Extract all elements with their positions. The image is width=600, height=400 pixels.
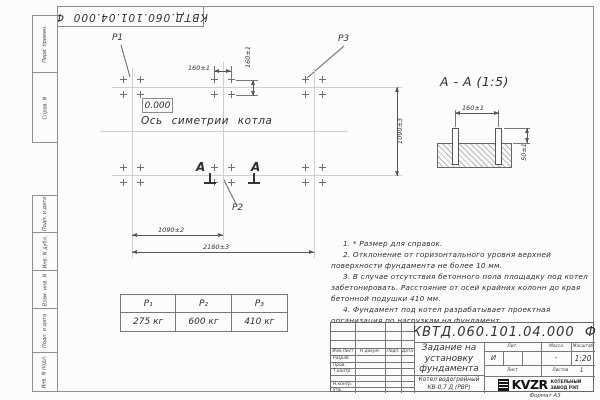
brand-subtext: КОТЕЛЬНЫЙ ЗАВОД РЭП: [551, 379, 582, 390]
dimension-text-bolt-height: 50±1: [511, 147, 537, 157]
scale-value: 1:20: [571, 351, 595, 365]
dimension-line: [132, 252, 314, 253]
margin-label: Инв. N дубл.: [42, 235, 48, 268]
bolt-mark: [302, 91, 309, 98]
scale-label: Масштаб: [571, 342, 595, 351]
drawing-sheet: КВТД.060.101.04.000 Ф Перв. примен. Спра…: [0, 0, 600, 400]
bolt-mark: [302, 76, 309, 83]
bolt-cluster: [211, 76, 235, 98]
axis-line: [112, 87, 402, 88]
lit-label: Лит.: [484, 342, 541, 351]
title-block-grid-line: [401, 323, 402, 393]
margin-cell-inv-dubl: Инв. N дубл.: [32, 232, 58, 271]
note-3: 3. В случае отсутствия бетонного пола пл…: [331, 272, 591, 305]
title-block-row-razrab: Разраб.: [331, 355, 355, 362]
bolt-mark: [228, 164, 235, 171]
note-2: 2. Отклонение от горизонтального уровня …: [331, 250, 591, 272]
mass-value: -: [541, 351, 571, 365]
load-table: P₁ P₂ P₃ 275 кг 600 кг 410 кг: [120, 294, 288, 332]
section-cut-mark: [209, 173, 211, 184]
load-table-value: 600 кг: [176, 313, 231, 331]
margin-label: Инв. N подл.: [42, 355, 48, 388]
dimension-text: 1090±3: [396, 118, 404, 144]
bolt-cluster: [120, 164, 144, 186]
dimension-text-section-spacing: 160±1: [462, 104, 484, 112]
title-block-row-utv: Утв.: [331, 387, 355, 393]
load-table-header: P₁: [121, 295, 176, 313]
dimension-line: [455, 113, 499, 114]
section-letter: А: [251, 160, 260, 174]
margin-label: Подп. и дата: [42, 313, 48, 347]
lit-value: И: [484, 351, 503, 365]
dimension-text-bolt-spacing-h: 160±1: [188, 64, 210, 72]
bolt-mark: [137, 164, 144, 171]
format-note: Формат А3: [505, 393, 585, 399]
load-table-header: P₂: [176, 295, 231, 313]
dimension-text: 160±1: [244, 46, 252, 68]
sheets-value: 1: [580, 367, 584, 374]
title-block-grid-line: [503, 351, 504, 365]
title-block-col-izm-list: Изм.Лист: [331, 348, 355, 355]
title-block-grid-line: [522, 351, 523, 365]
bolt-mark: [137, 76, 144, 83]
title-block-col-n-dokum: Н докум.: [355, 348, 385, 355]
section-letter: А: [196, 160, 205, 174]
anchor-bolt: [452, 128, 459, 165]
anchor-bolt: [495, 128, 502, 165]
load-table-value: 275 кг: [121, 313, 176, 331]
bolt-mark: [302, 179, 309, 186]
axis-line: [112, 175, 402, 176]
bolt-mark: [211, 91, 218, 98]
company-logo: KVZR КОТЕЛЬНЫЙ ЗАВОД РЭП: [484, 376, 595, 393]
load-point-label-p3: P3: [338, 34, 349, 44]
margin-label: Перв. примен.: [42, 25, 48, 63]
bolt-mark: [228, 179, 235, 186]
extension-line: [231, 66, 232, 77]
dimension-text-bolt-spacing-v: 160±1: [233, 52, 263, 62]
bolt-mark: [137, 91, 144, 98]
load-point-label-p2: P2: [232, 203, 243, 213]
doc-number: КВТД.060.101.04.000 Ф: [414, 323, 595, 342]
margin-cell-sprav-n: Справ. N: [32, 72, 58, 143]
title-block-grid-line: [331, 331, 414, 332]
dimension-text-half-span: 1090±2: [158, 226, 184, 234]
dimension-line: [132, 235, 223, 236]
product-name: Котел водогрейный КВ-0,7 Д (РВР): [415, 376, 483, 393]
title-block-row-tkontr: Т.контр.: [331, 368, 355, 375]
stamp-doc-number: КВТД.060.101.04.000 Ф: [54, 11, 208, 23]
title-block: Изм.Лист Н докум. Подп. Дата Разраб. Про…: [330, 322, 594, 392]
bolt-cluster: [302, 164, 326, 186]
sheets-label: Листов: [552, 368, 568, 373]
bolt-mark: [120, 76, 127, 83]
bolt-mark: [228, 76, 235, 83]
title-block-grid-line: [331, 340, 414, 341]
bolt-mark: [137, 179, 144, 186]
kvzr-emblem-icon: [498, 379, 509, 391]
margin-label: Подп. и дата: [42, 197, 48, 231]
technical-notes: 1. * Размер для справок. 2. Отклонение о…: [331, 239, 591, 327]
bolt-mark: [319, 164, 326, 171]
bolt-mark: [120, 179, 127, 186]
sheets-cell: Листов 1: [541, 365, 595, 376]
dimension-text: 50±1: [520, 143, 528, 161]
bolt-cluster: [120, 76, 144, 98]
bolt-mark: [319, 91, 326, 98]
bolt-mark: [120, 91, 127, 98]
bolt-mark: [319, 76, 326, 83]
section-cut-mark: [253, 173, 255, 184]
margin-cell-vzam-inv: Взам. инв. N: [32, 270, 58, 309]
mass-label: Масса: [541, 342, 571, 351]
brand-text: KVZR: [512, 377, 548, 392]
dimension-text-row-spacing: 1090±3: [381, 126, 419, 136]
bolt-mark: [211, 164, 218, 171]
load-table-header: P₃: [232, 295, 287, 313]
note-1: 1. * Размер для справок.: [331, 239, 591, 250]
dimension-line: [214, 71, 231, 72]
section-view-title: А - А (1:5): [440, 74, 509, 89]
margin-cell-perv-primen: Перв. примен.: [32, 15, 58, 73]
margin-cell-podp-data-2: Подп. и дата: [32, 308, 58, 353]
bolt-mark: [302, 164, 309, 171]
title-block-grid-line: [355, 323, 356, 393]
stamp-box: КВТД.060.101.04.000 Ф: [57, 6, 204, 27]
dimension-text-total-span: 2180±3: [203, 243, 229, 251]
margin-cell-inv-podl: Инв. N подл.: [32, 352, 58, 392]
boiler-symmetry-centerline: [100, 131, 348, 132]
zero-level-mark: 0.000: [142, 98, 173, 113]
drawing-title: Задание на установку фундамента: [415, 343, 483, 375]
title-block-grid-line: [331, 375, 414, 376]
margin-label: Справ. N: [42, 96, 48, 119]
sheet-label: Лист: [484, 365, 541, 376]
margin-cell-podp-data-1: Подп. и дата: [32, 195, 58, 233]
title-block-col-data: Дата: [401, 348, 414, 355]
load-table-value: 410 кг: [232, 313, 287, 331]
bolt-mark: [319, 179, 326, 186]
margin-label: Взам. инв. N: [42, 273, 48, 306]
zero-level-text: 0.000: [145, 101, 171, 111]
bolt-mark: [228, 91, 235, 98]
load-point-label-p1: P1: [112, 33, 123, 43]
bolt-mark: [211, 76, 218, 83]
bolt-cluster: [302, 76, 326, 98]
brand-line2: ЗАВОД РЭП: [551, 385, 582, 390]
bolt-mark: [120, 164, 127, 171]
symmetry-axis-label: Ось симетрии котла: [141, 115, 272, 127]
dimension-line: [253, 80, 254, 96]
title-block-col-podp: Подп.: [385, 348, 401, 355]
dimension-line: [527, 128, 528, 143]
title-block-grid-line: [385, 323, 386, 393]
